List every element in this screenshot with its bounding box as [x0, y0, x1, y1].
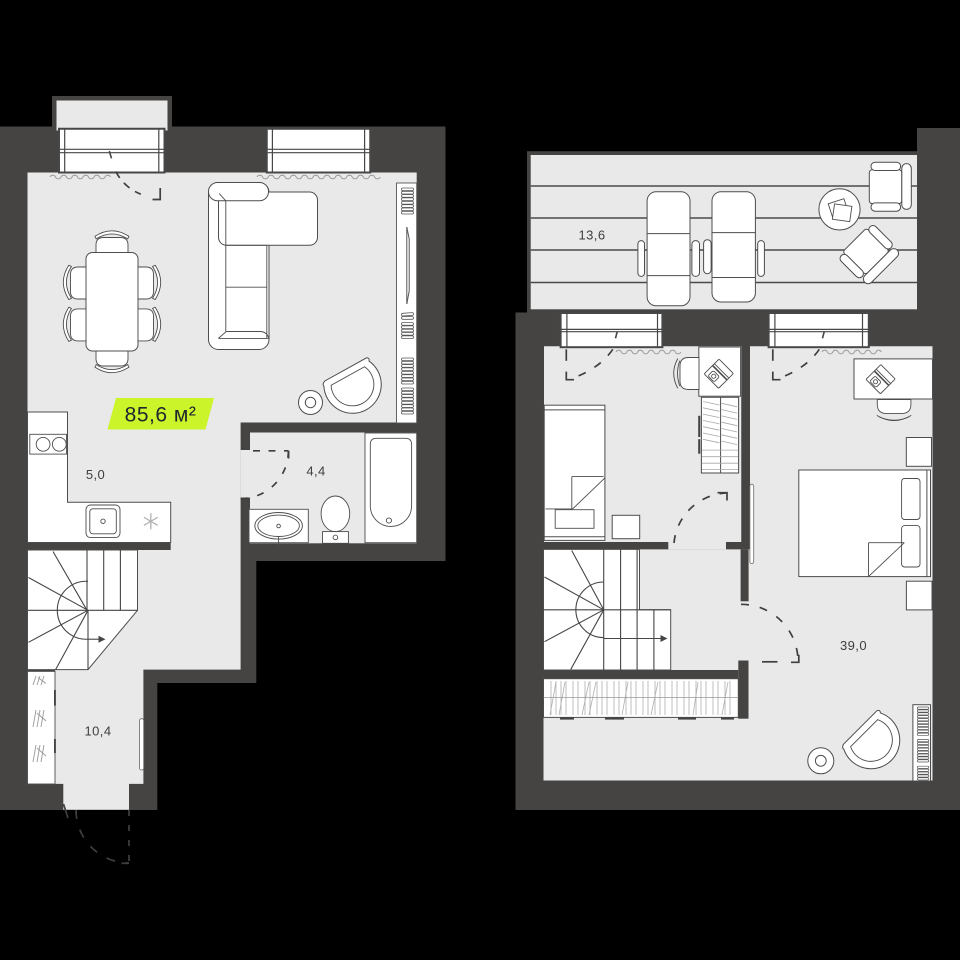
svg-text:39,0: 39,0 — [840, 638, 867, 653]
svg-text:85,6 м²: 85,6 м² — [125, 404, 197, 427]
svg-text:5,0: 5,0 — [86, 467, 105, 482]
svg-text:10,4: 10,4 — [85, 724, 112, 739]
svg-text:13,6: 13,6 — [579, 228, 606, 243]
svg-text:4,4: 4,4 — [306, 464, 325, 479]
